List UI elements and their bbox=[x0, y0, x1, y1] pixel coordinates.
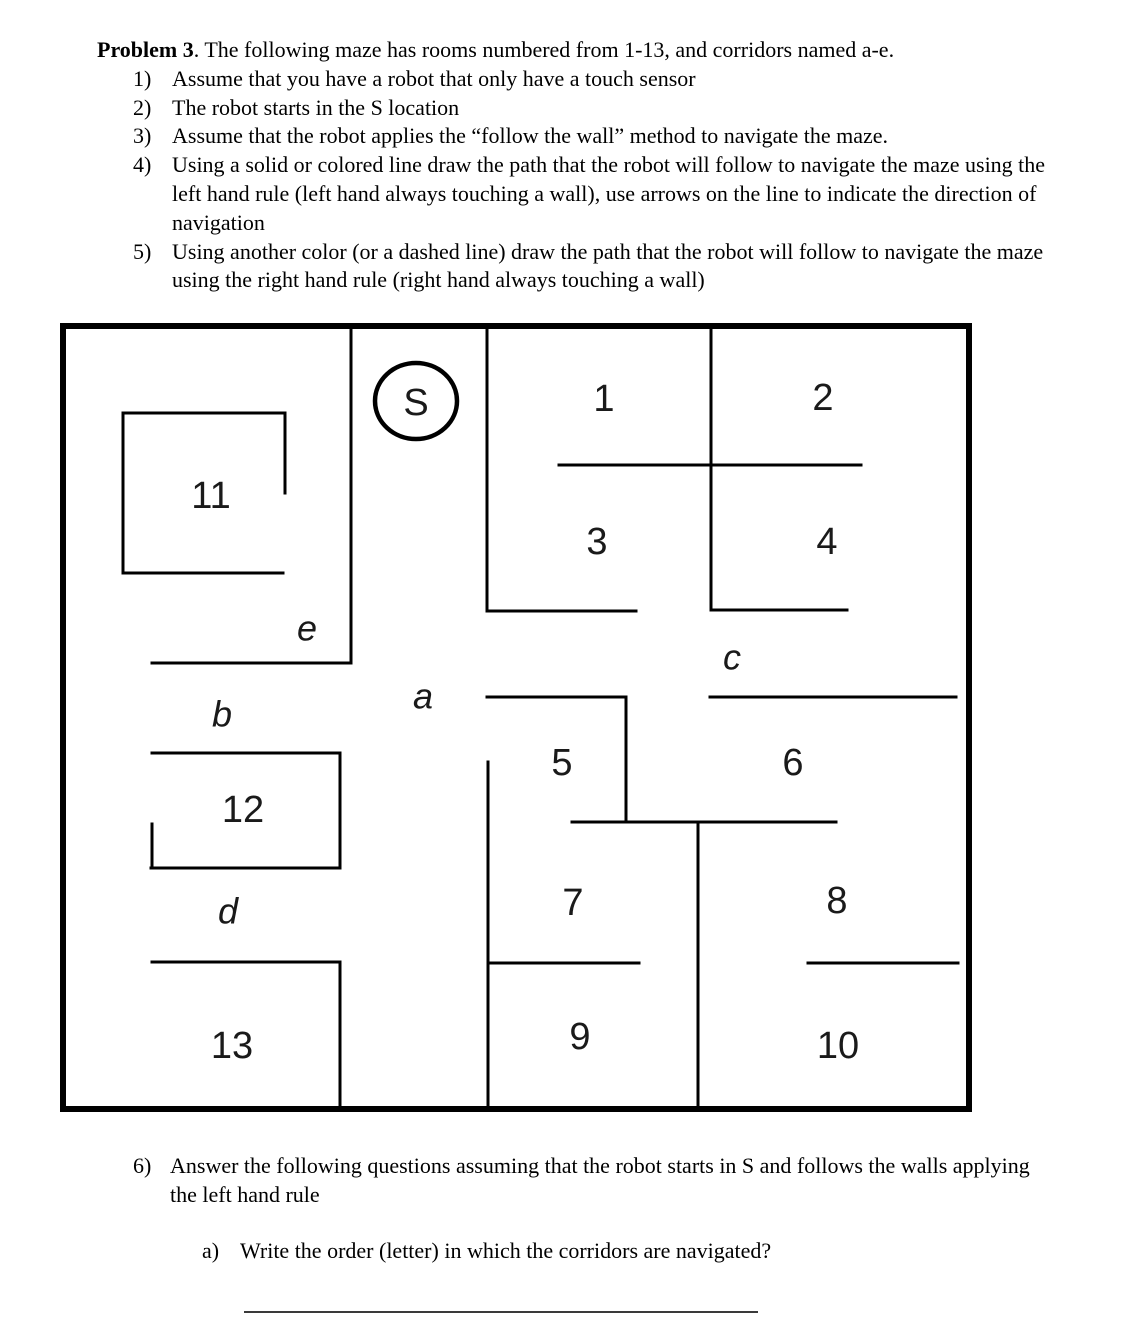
worksheet-page: Problem 3. The following maze has rooms … bbox=[0, 0, 1144, 1340]
room-label-11: 11 bbox=[191, 475, 230, 517]
maze-figure: S12345678910111213abcde bbox=[0, 0, 1144, 1340]
corridor-label-a: a bbox=[413, 676, 433, 717]
room-label-5: 5 bbox=[551, 742, 572, 784]
question-6-text: Answer the following questions assuming … bbox=[170, 1152, 1048, 1210]
question-6a-number: a) bbox=[202, 1237, 240, 1266]
room-label-3: 3 bbox=[586, 521, 607, 563]
corridor-label-b: b bbox=[212, 694, 232, 735]
maze-outer-border bbox=[63, 326, 969, 1109]
start-label: S bbox=[403, 382, 428, 424]
room-label-9: 9 bbox=[569, 1016, 590, 1058]
room-label-8: 8 bbox=[826, 880, 847, 922]
room-label-12: 12 bbox=[222, 789, 264, 831]
answer-blank-line bbox=[244, 1311, 758, 1313]
corridor-label-c: c bbox=[723, 637, 741, 678]
question-6: 6) Answer the following questions assumi… bbox=[133, 1152, 1083, 1210]
question-6a: a) Write the order (letter) in which the… bbox=[202, 1237, 1102, 1266]
room-label-1: 1 bbox=[593, 378, 614, 420]
question-6a-text: Write the order (letter) in which the co… bbox=[240, 1237, 1080, 1266]
corridor-label-e: e bbox=[297, 608, 317, 649]
room-label-10: 10 bbox=[817, 1025, 859, 1067]
room-label-2: 2 bbox=[812, 377, 833, 419]
room-label-7: 7 bbox=[562, 882, 583, 924]
room-label-13: 13 bbox=[211, 1025, 253, 1067]
room-label-4: 4 bbox=[816, 521, 837, 563]
question-6-number: 6) bbox=[133, 1152, 170, 1210]
corridor-label-d: d bbox=[218, 891, 239, 932]
room-label-6: 6 bbox=[782, 742, 803, 784]
